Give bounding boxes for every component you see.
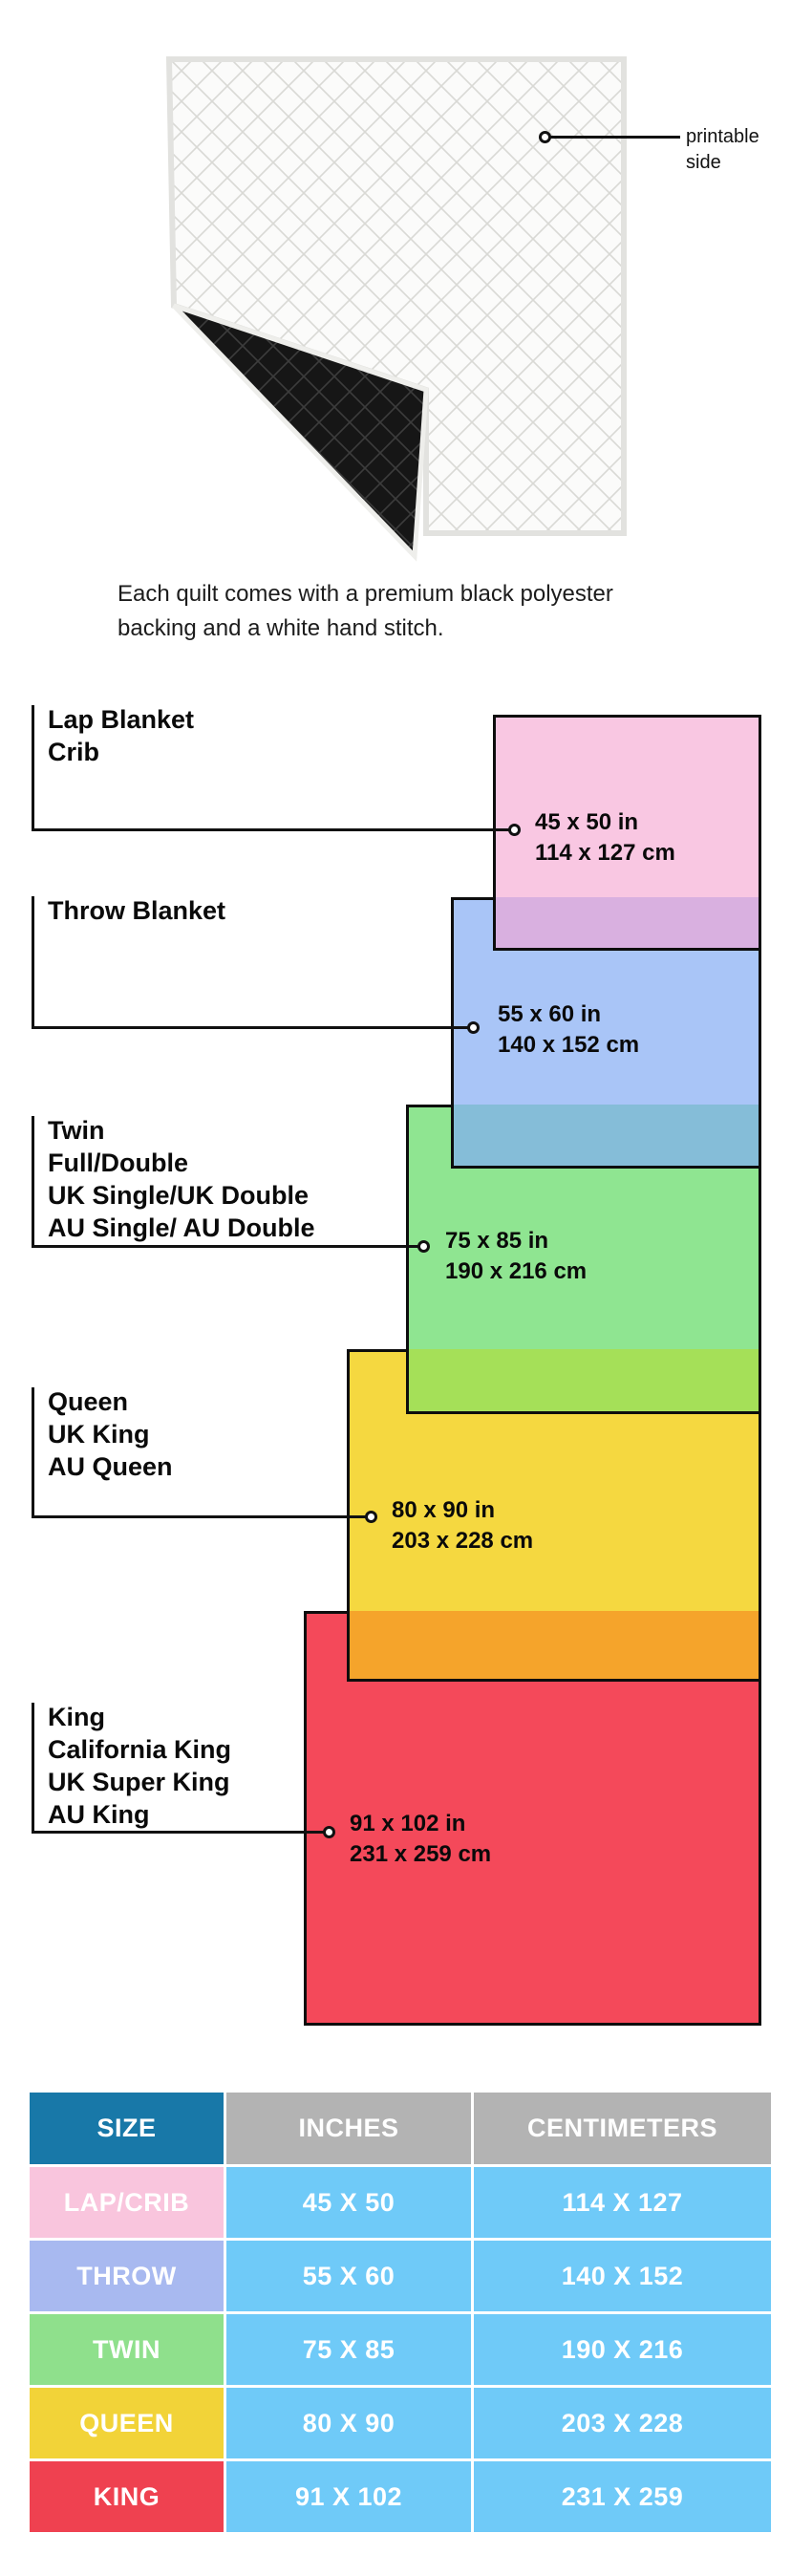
table-row-king-label: KING (30, 2461, 224, 2532)
table-row-throw-label: THROW (30, 2241, 224, 2311)
queen-name-3: AU Queen (48, 1450, 173, 1483)
lap-throw-overlap (496, 897, 759, 948)
king-size-cm: 231 x 259 cm (350, 1839, 491, 1870)
table-row-lap-label: LAP/CRIB (30, 2167, 224, 2238)
twin-size-cm: 190 x 216 cm (445, 1256, 587, 1287)
lap-name-2: Crib (48, 736, 194, 768)
quilt-image (166, 55, 627, 562)
twin-leader-line (32, 1245, 419, 1248)
queen-leader-line (32, 1515, 366, 1518)
table-row-lap-inches: 45 X 50 (226, 2167, 471, 2238)
printable-side-leader-line (550, 136, 680, 139)
lap-size-inches: 45 x 50 in (535, 807, 675, 838)
table-row-twin-inches: 75 X 85 (226, 2314, 471, 2385)
king-bracket-line (32, 1703, 34, 1833)
table-header-inches: INCHES (226, 2093, 471, 2164)
king-name-4: AU King (48, 1798, 231, 1831)
twin-name-4: AU Single/ AU Double (48, 1212, 315, 1244)
throw-size-cm: 140 x 152 cm (498, 1030, 639, 1061)
twin-size-inches: 75 x 85 in (445, 1226, 587, 1256)
throw-twin-overlap (454, 1105, 759, 1166)
twin-size-label: 75 x 85 in 190 x 216 cm (445, 1226, 587, 1287)
queen-name-2: UK King (48, 1418, 173, 1450)
quilt-size-chart-page: printable side Each quilt comes with a p… (0, 0, 791, 2576)
king-size-label: 91 x 102 in 231 x 259 cm (350, 1809, 491, 1870)
queen-size-cm: 203 x 228 cm (392, 1526, 533, 1556)
printable-side-label: printable side (686, 124, 791, 176)
table-row-queen-cm: 203 X 228 (474, 2388, 771, 2458)
queen-group-label: Queen UK King AU Queen (48, 1385, 173, 1483)
twin-queen-overlap (409, 1349, 759, 1411)
king-name-1: King (48, 1701, 231, 1733)
queen-bracket-line (32, 1387, 34, 1517)
twin-group-label: Twin Full/Double UK Single/UK Double AU … (48, 1114, 315, 1244)
table-row-king-cm: 231 X 259 (474, 2461, 771, 2532)
king-size-inches: 91 x 102 in (350, 1809, 491, 1839)
throw-bracket-line (32, 896, 34, 1029)
lap-bracket-line (32, 705, 34, 830)
lap-marker-icon (508, 824, 521, 836)
queen-name-1: Queen (48, 1385, 173, 1418)
twin-name-1: Twin (48, 1114, 315, 1147)
lap-size-cm: 114 x 127 cm (535, 838, 675, 869)
lap-leader-line (32, 828, 509, 831)
throw-group-label: Throw Blanket (48, 894, 225, 927)
queen-king-overlap (350, 1611, 759, 1679)
twin-bracket-line (32, 1116, 34, 1248)
table-row-throw-inches: 55 X 60 (226, 2241, 471, 2311)
queen-size-label: 80 x 90 in 203 x 228 cm (392, 1495, 533, 1556)
lap-group-label: Lap Blanket Crib (48, 703, 194, 768)
table-header-size: SIZE (30, 2093, 224, 2164)
queen-size-inches: 80 x 90 in (392, 1495, 533, 1526)
size-table: SIZE INCHES CENTIMETERS LAP/CRIB 45 X 50… (30, 2093, 771, 2532)
table-row-twin-cm: 190 X 216 (474, 2314, 771, 2385)
throw-marker-icon (467, 1021, 480, 1034)
quilt-caption-line2: backing and a white hand stitch. (118, 612, 613, 646)
throw-size-label: 55 x 60 in 140 x 152 cm (498, 999, 639, 1061)
lap-name-1: Lap Blanket (48, 703, 194, 736)
king-name-2: California King (48, 1733, 231, 1766)
table-row-twin-label: TWIN (30, 2314, 224, 2385)
king-marker-icon (323, 1826, 335, 1838)
twin-name-2: Full/Double (48, 1147, 315, 1179)
table-row-lap-cm: 114 X 127 (474, 2167, 771, 2238)
king-leader-line (32, 1831, 324, 1834)
king-name-3: UK Super King (48, 1766, 231, 1798)
quilt-caption-line1: Each quilt comes with a premium black po… (118, 577, 613, 612)
twin-name-3: UK Single/UK Double (48, 1179, 315, 1212)
twin-marker-icon (417, 1240, 430, 1253)
table-header-centimeters: CENTIMETERS (474, 2093, 771, 2164)
lap-size-label: 45 x 50 in 114 x 127 cm (535, 807, 675, 869)
quilt-caption: Each quilt comes with a premium black po… (118, 577, 613, 646)
table-row-queen-inches: 80 X 90 (226, 2388, 471, 2458)
throw-name-1: Throw Blanket (48, 894, 225, 927)
table-row-king-inches: 91 X 102 (226, 2461, 471, 2532)
queen-marker-icon (365, 1511, 377, 1523)
king-group-label: King California King UK Super King AU Ki… (48, 1701, 231, 1831)
throw-size-inches: 55 x 60 in (498, 999, 639, 1030)
table-row-throw-cm: 140 X 152 (474, 2241, 771, 2311)
throw-leader-line (32, 1026, 469, 1029)
table-row-queen-label: QUEEN (30, 2388, 224, 2458)
